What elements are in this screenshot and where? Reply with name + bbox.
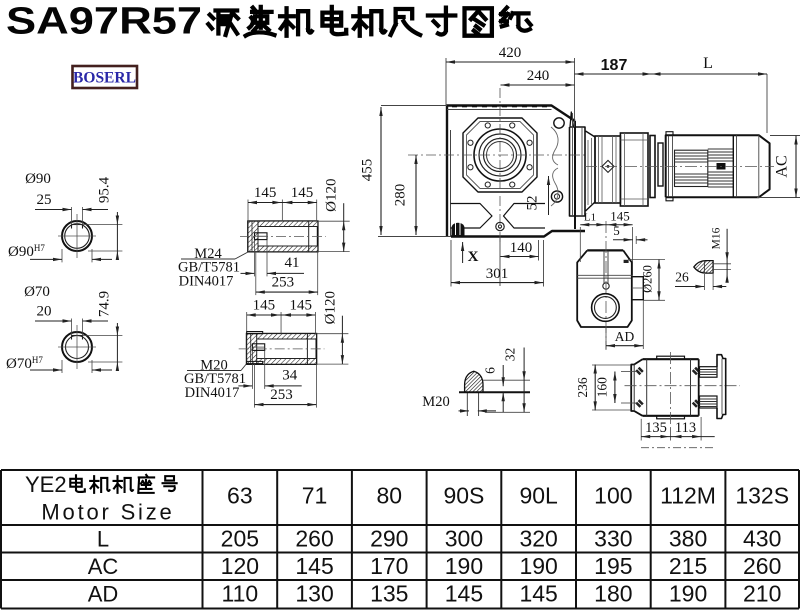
svg-text:140: 140: [510, 240, 533, 256]
svg-text:130: 130: [295, 581, 333, 607]
svg-text:L1: L1: [584, 212, 596, 224]
svg-text:20: 20: [37, 304, 52, 320]
svg-text:Motor Size: Motor Size: [41, 500, 174, 525]
svg-text:113: 113: [675, 420, 696, 436]
svg-text:253: 253: [270, 387, 293, 403]
svg-text:26: 26: [675, 270, 689, 285]
svg-text:L: L: [703, 55, 713, 72]
svg-text:330: 330: [594, 526, 632, 552]
svg-text:34: 34: [282, 367, 298, 383]
svg-text:190: 190: [445, 553, 483, 579]
svg-text:5: 5: [613, 223, 620, 238]
svg-text:280: 280: [393, 184, 409, 207]
svg-text:195: 195: [594, 553, 632, 579]
svg-text:95.4: 95.4: [97, 176, 113, 203]
svg-text:145: 145: [291, 185, 314, 201]
svg-text:52: 52: [525, 196, 541, 211]
svg-text:74.9: 74.9: [97, 291, 113, 317]
svg-text:170: 170: [370, 553, 408, 579]
svg-text:AC: AC: [774, 155, 791, 177]
svg-text:Ø120: Ø120: [324, 179, 340, 212]
svg-text:41: 41: [285, 255, 300, 271]
svg-text:Ø260: Ø260: [641, 265, 655, 293]
svg-text:M20: M20: [422, 394, 449, 410]
svg-text:145: 145: [254, 185, 277, 201]
svg-text:301: 301: [486, 266, 509, 282]
svg-text:300: 300: [445, 526, 483, 552]
svg-text:Ø70: Ø70: [24, 284, 50, 300]
svg-text:M16: M16: [711, 227, 723, 249]
svg-text:AC: AC: [88, 554, 119, 579]
svg-text:6: 6: [483, 367, 498, 374]
svg-text:380: 380: [669, 526, 707, 552]
svg-text:420: 420: [499, 45, 522, 61]
svg-text:145: 145: [289, 298, 312, 314]
svg-text:112M: 112M: [660, 483, 716, 509]
svg-text:110: 110: [222, 581, 259, 607]
svg-text:145: 145: [610, 209, 630, 224]
svg-text:145: 145: [295, 553, 333, 579]
svg-text:145: 145: [519, 581, 557, 607]
svg-text:455: 455: [360, 159, 376, 182]
svg-text:145: 145: [253, 298, 276, 314]
svg-text:160: 160: [595, 377, 610, 398]
svg-text:DIN4017: DIN4017: [185, 385, 240, 401]
svg-text:205: 205: [221, 526, 259, 552]
svg-text:32: 32: [503, 348, 518, 362]
svg-text:DIN4017: DIN4017: [179, 274, 234, 290]
svg-text:215: 215: [669, 553, 707, 579]
svg-text:120: 120: [221, 553, 259, 579]
svg-text:260: 260: [295, 526, 333, 552]
svg-text:YE2: YE2: [25, 472, 67, 497]
svg-text:25: 25: [37, 192, 52, 208]
svg-text:430: 430: [743, 526, 781, 552]
svg-text:Ø90: Ø90: [25, 171, 51, 187]
svg-text:BOSERL: BOSERL: [73, 70, 136, 87]
svg-text:90S: 90S: [443, 483, 484, 509]
svg-text:X: X: [468, 249, 479, 265]
svg-text:210: 210: [743, 581, 781, 607]
svg-text:290: 290: [370, 526, 408, 552]
svg-text:80: 80: [376, 483, 402, 509]
svg-text:AD: AD: [615, 329, 635, 344]
svg-text:135: 135: [370, 581, 408, 607]
svg-text:145: 145: [445, 581, 483, 607]
svg-text:100: 100: [594, 483, 632, 509]
svg-text:135: 135: [645, 420, 667, 436]
svg-text:253: 253: [272, 275, 295, 291]
svg-text:187: 187: [601, 57, 628, 74]
svg-text:132S: 132S: [735, 483, 789, 509]
svg-text:90L: 90L: [519, 483, 558, 509]
svg-text:320: 320: [519, 526, 557, 552]
svg-text:190: 190: [519, 553, 557, 579]
svg-text:260: 260: [743, 553, 781, 579]
svg-text:240: 240: [527, 68, 550, 84]
svg-text:71: 71: [302, 483, 328, 509]
svg-text:180: 180: [594, 581, 632, 607]
svg-text:AD: AD: [88, 582, 119, 607]
svg-text:L: L: [97, 527, 109, 552]
svg-text:63: 63: [227, 483, 253, 509]
svg-text:SA97R57: SA97R57: [6, 1, 202, 43]
svg-text:Ø120: Ø120: [322, 291, 338, 324]
svg-text:190: 190: [669, 581, 707, 607]
svg-text:236: 236: [575, 377, 590, 398]
